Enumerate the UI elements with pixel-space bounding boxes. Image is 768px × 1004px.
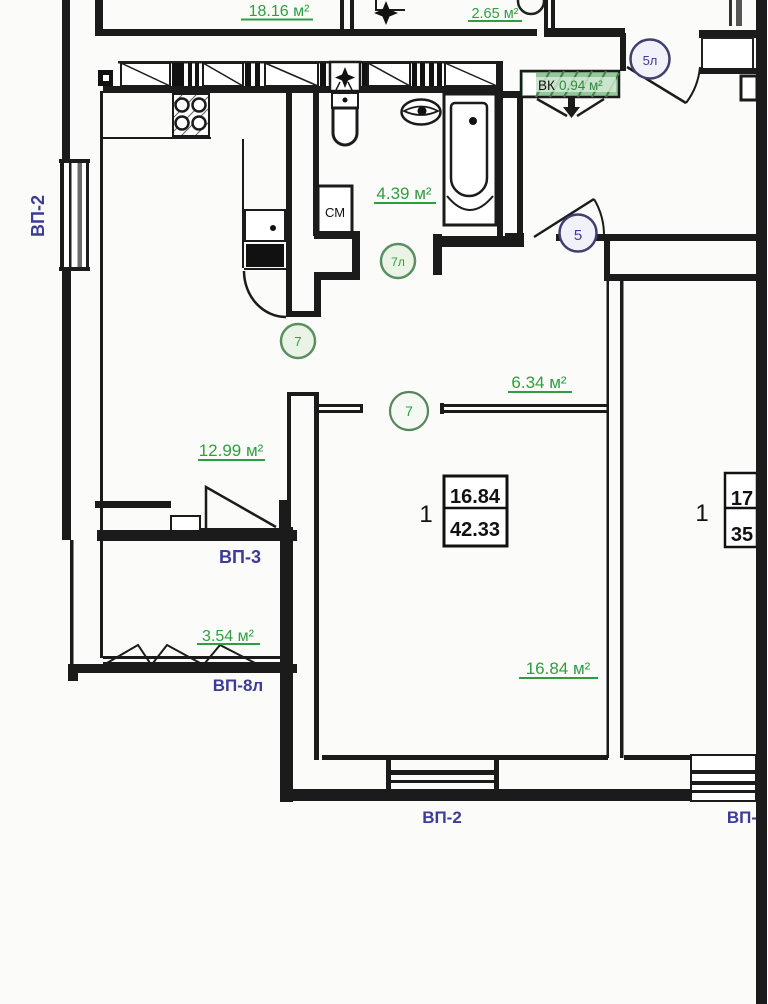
svg-text:5л: 5л	[643, 53, 658, 68]
svg-text:16.84 м²: 16.84 м²	[526, 659, 591, 678]
svg-text:17: 17	[731, 488, 753, 510]
svg-text:7: 7	[294, 334, 301, 349]
svg-text:2.65 м²: 2.65 м²	[471, 6, 518, 22]
svg-text:7л: 7л	[391, 255, 405, 269]
svg-text:3.54 м²: 3.54 м²	[202, 628, 255, 645]
svg-text:ВП-: ВП-	[727, 808, 757, 827]
svg-text:0.94 м²: 0.94 м²	[559, 78, 603, 93]
svg-text:ВП-3: ВП-3	[219, 547, 261, 567]
svg-text:ВП-2: ВП-2	[28, 195, 48, 237]
svg-text:СМ: СМ	[325, 205, 345, 220]
svg-text:42.33: 42.33	[450, 519, 500, 541]
svg-text:12.99 м²: 12.99 м²	[199, 441, 264, 460]
svg-text:ВК: ВК	[538, 78, 555, 93]
svg-text:ВП-8л: ВП-8л	[213, 676, 263, 695]
svg-text:16.84: 16.84	[450, 486, 501, 508]
svg-text:1: 1	[419, 501, 432, 528]
svg-text:35: 35	[731, 524, 753, 546]
svg-text:4.39 м²: 4.39 м²	[376, 184, 431, 203]
svg-text:6.34 м²: 6.34 м²	[511, 373, 566, 392]
svg-text:1: 1	[695, 500, 708, 527]
svg-text:18.16 м²: 18.16 м²	[249, 3, 310, 20]
svg-text:7: 7	[405, 403, 413, 419]
svg-text:ВП-2: ВП-2	[422, 808, 462, 827]
svg-text:5: 5	[574, 227, 582, 244]
